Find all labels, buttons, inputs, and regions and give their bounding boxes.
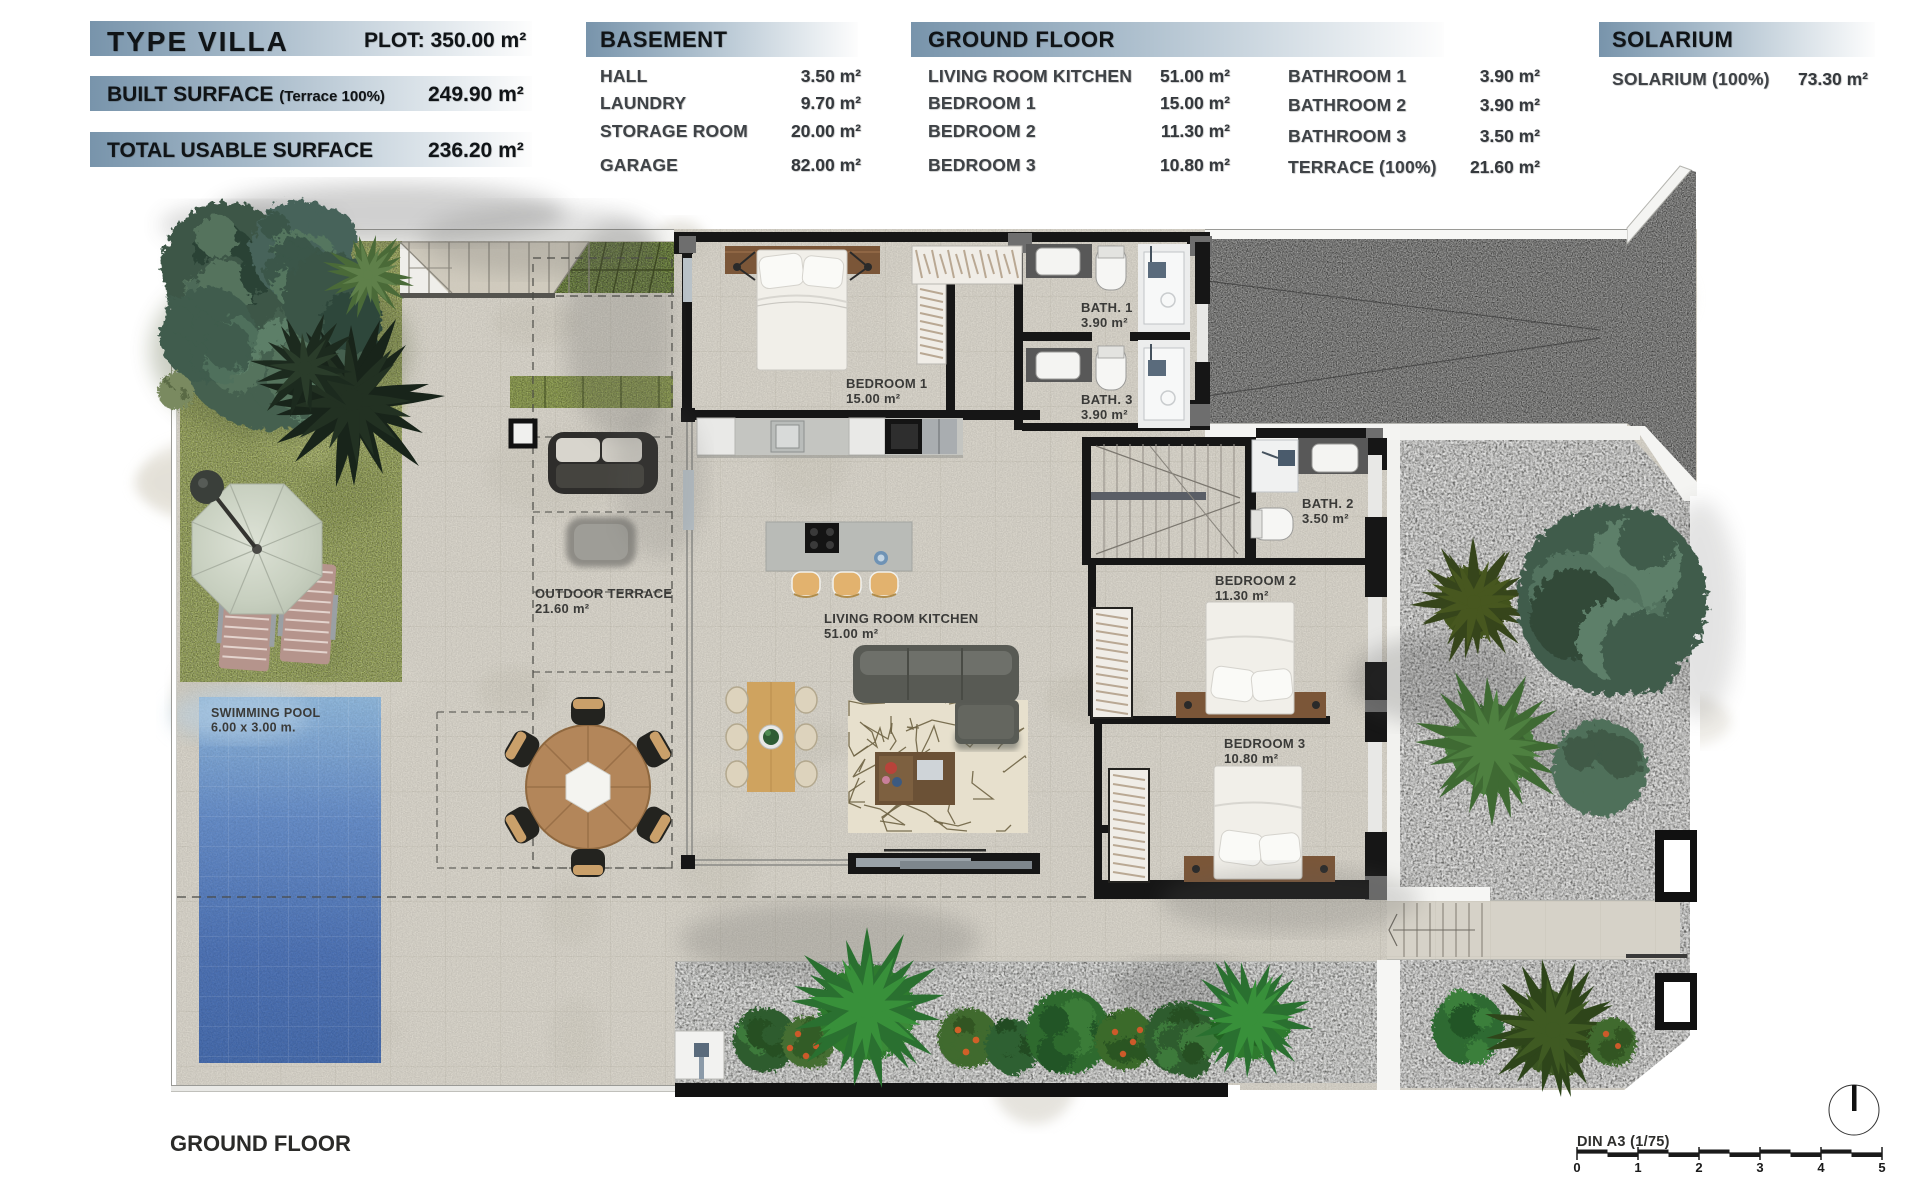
svg-text:BATH. 13.90 m²: BATH. 13.90 m² [1081,300,1133,330]
svg-text:GROUND FLOOR: GROUND FLOOR [170,1131,351,1156]
svg-text:2: 2 [1695,1160,1702,1175]
svg-text:0: 0 [1573,1160,1580,1175]
svg-text:5: 5 [1878,1160,1885,1175]
svg-text:1: 1 [1634,1160,1641,1175]
svg-text:4: 4 [1817,1160,1825,1175]
svg-text:BATH. 23.50 m²: BATH. 23.50 m² [1302,496,1354,526]
svg-text:DIN A3 (1/75): DIN A3 (1/75) [1577,1134,1670,1150]
svg-text:3: 3 [1756,1160,1763,1175]
svg-text:BATH. 33.90 m²: BATH. 33.90 m² [1081,392,1133,422]
